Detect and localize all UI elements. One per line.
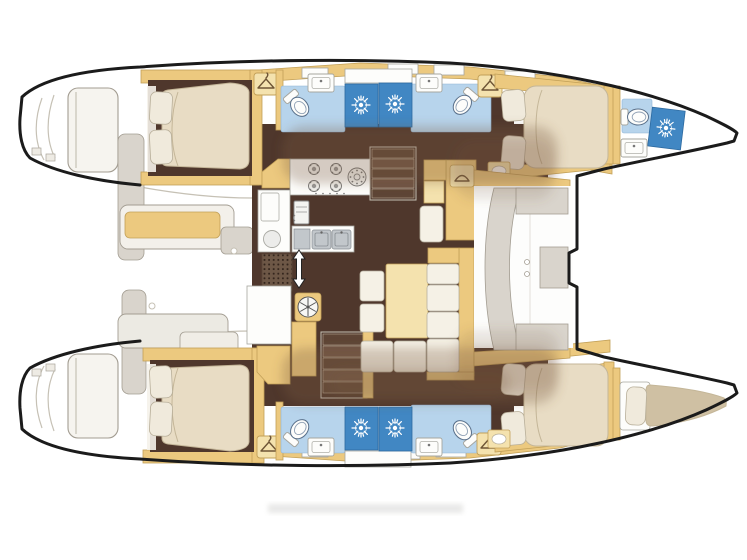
saloon-table xyxy=(386,264,428,338)
stool xyxy=(360,271,384,301)
cleat xyxy=(46,154,55,161)
sunburst-shower-icon xyxy=(352,96,370,114)
bench-cushion xyxy=(125,212,220,238)
starboard-forward-head xyxy=(379,405,501,456)
floor-plan-canvas xyxy=(0,0,747,560)
settee-cushion xyxy=(427,285,459,311)
port-forward-head xyxy=(379,74,502,132)
floor-grating xyxy=(262,254,292,291)
stool xyxy=(360,304,384,332)
deck-fitting xyxy=(149,303,155,309)
sink-icon xyxy=(416,74,442,92)
sunburst-shower-icon xyxy=(352,419,370,437)
pillow xyxy=(149,401,173,436)
galley-sink-icon xyxy=(312,230,331,249)
deck-fitting xyxy=(231,248,237,254)
nav-seat xyxy=(420,206,443,242)
fridge-icon xyxy=(294,201,310,224)
hanger-icon xyxy=(254,73,278,95)
pillow xyxy=(149,365,173,398)
seat-tongue xyxy=(540,247,568,288)
saloon-side-cabinet xyxy=(247,286,291,344)
settee-cushion xyxy=(427,264,459,284)
faint-watermark xyxy=(268,504,463,513)
sink-icon xyxy=(416,438,442,456)
aft-cockpit-bench-forward xyxy=(120,205,253,254)
cleat xyxy=(46,364,55,371)
round-sink-icon xyxy=(264,231,281,248)
sink-icon xyxy=(308,74,334,92)
pillow xyxy=(149,129,173,164)
port-aft-cabin xyxy=(141,70,278,185)
cleat xyxy=(32,369,41,376)
drain xyxy=(525,272,530,277)
galley-sink-icon xyxy=(332,230,351,249)
drain xyxy=(525,260,530,265)
catamaran-floor-plan xyxy=(0,0,747,560)
sunburst-shower-icon xyxy=(386,419,404,437)
cleat xyxy=(32,148,41,155)
sink-icon xyxy=(621,139,647,157)
fan-hatch-icon xyxy=(298,297,318,317)
toilet-icon xyxy=(621,109,649,125)
pillow xyxy=(625,387,647,426)
deck-hatch xyxy=(434,65,464,75)
sink-icon xyxy=(308,438,334,456)
pillow xyxy=(501,89,527,122)
drainer xyxy=(294,229,310,249)
pillow xyxy=(149,91,173,124)
settee-cushion xyxy=(427,312,459,338)
sunburst-shower-icon xyxy=(386,95,404,113)
